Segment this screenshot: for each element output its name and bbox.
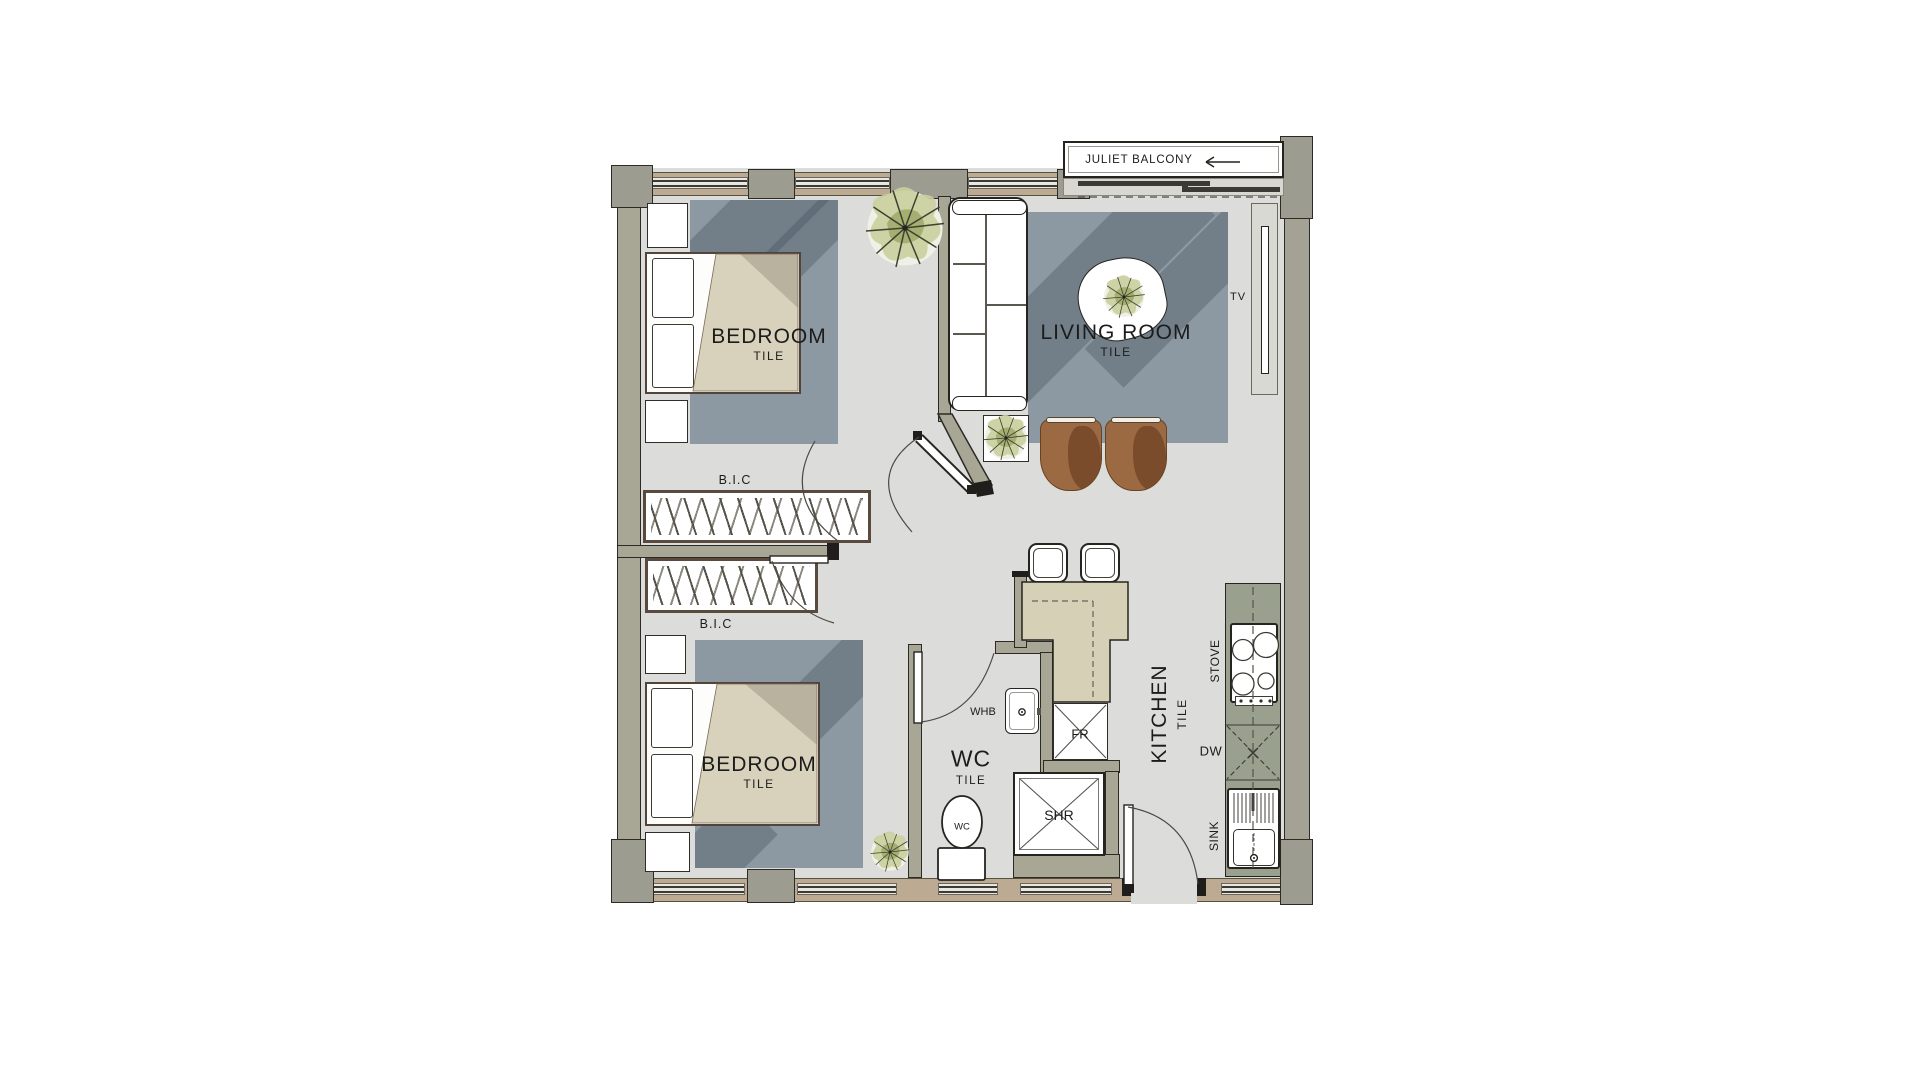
shower-label: SHR: [1044, 807, 1074, 823]
bedroom2-door-leaf: [770, 556, 828, 563]
bedroom2-finish: TILE: [743, 777, 774, 791]
sink-label: SINK: [1207, 821, 1221, 851]
closet1-label: B.I.C: [719, 473, 752, 487]
wash-basin-label: WHB: [970, 706, 996, 718]
kitchen-name: KITCHEN: [1148, 664, 1172, 763]
entry-door-leaf: [1122, 805, 1134, 893]
plant-bedroom2: [871, 832, 910, 872]
stove-label: STOVE: [1208, 640, 1222, 683]
plan-linework: [0, 0, 1920, 1080]
kitchen-finish: TILE: [1175, 698, 1189, 729]
floor-plan: JULIET BALCONY BEDROOM TILE BEDROOM TILE…: [0, 0, 1920, 1080]
sink-faucet: [1251, 833, 1258, 861]
bedroom1-name: BEDROOM: [711, 325, 827, 349]
stove-control-knobs: [1239, 699, 1271, 702]
stove-burners: [1232, 633, 1279, 696]
kitchen-peninsula: [1022, 582, 1128, 702]
wc-door-leaf: [914, 652, 922, 723]
plant-bedroom1: [866, 187, 944, 267]
tv-label: TV: [1230, 291, 1246, 303]
bedroom2-name: BEDROOM: [701, 753, 817, 777]
wc-finish: TILE: [956, 775, 986, 787]
plant-coffee-table: [1103, 275, 1145, 318]
toilet: [938, 796, 985, 880]
bedroom1-duvet: [693, 254, 798, 391]
wash-basin-faucet: [1019, 708, 1041, 715]
bedroom1-finish: TILE: [753, 349, 784, 363]
door-swing-arcs: [772, 437, 1198, 884]
balcony-label: JULIET BALCONY: [1085, 154, 1193, 166]
closet2-label: B.I.C: [700, 617, 733, 631]
living-room-finish: TILE: [1100, 345, 1131, 359]
plant-hall-pot: [984, 415, 1028, 460]
toilet-label: WC: [954, 822, 970, 833]
wc-name: WC: [951, 746, 991, 773]
left-arrow-icon: [1206, 157, 1240, 167]
fridge-label: FR: [1071, 727, 1088, 742]
living-room-name: LIVING ROOM: [1040, 321, 1191, 345]
dishwasher-label: DW: [1200, 744, 1223, 759]
sink-drainboard: [1234, 793, 1273, 823]
